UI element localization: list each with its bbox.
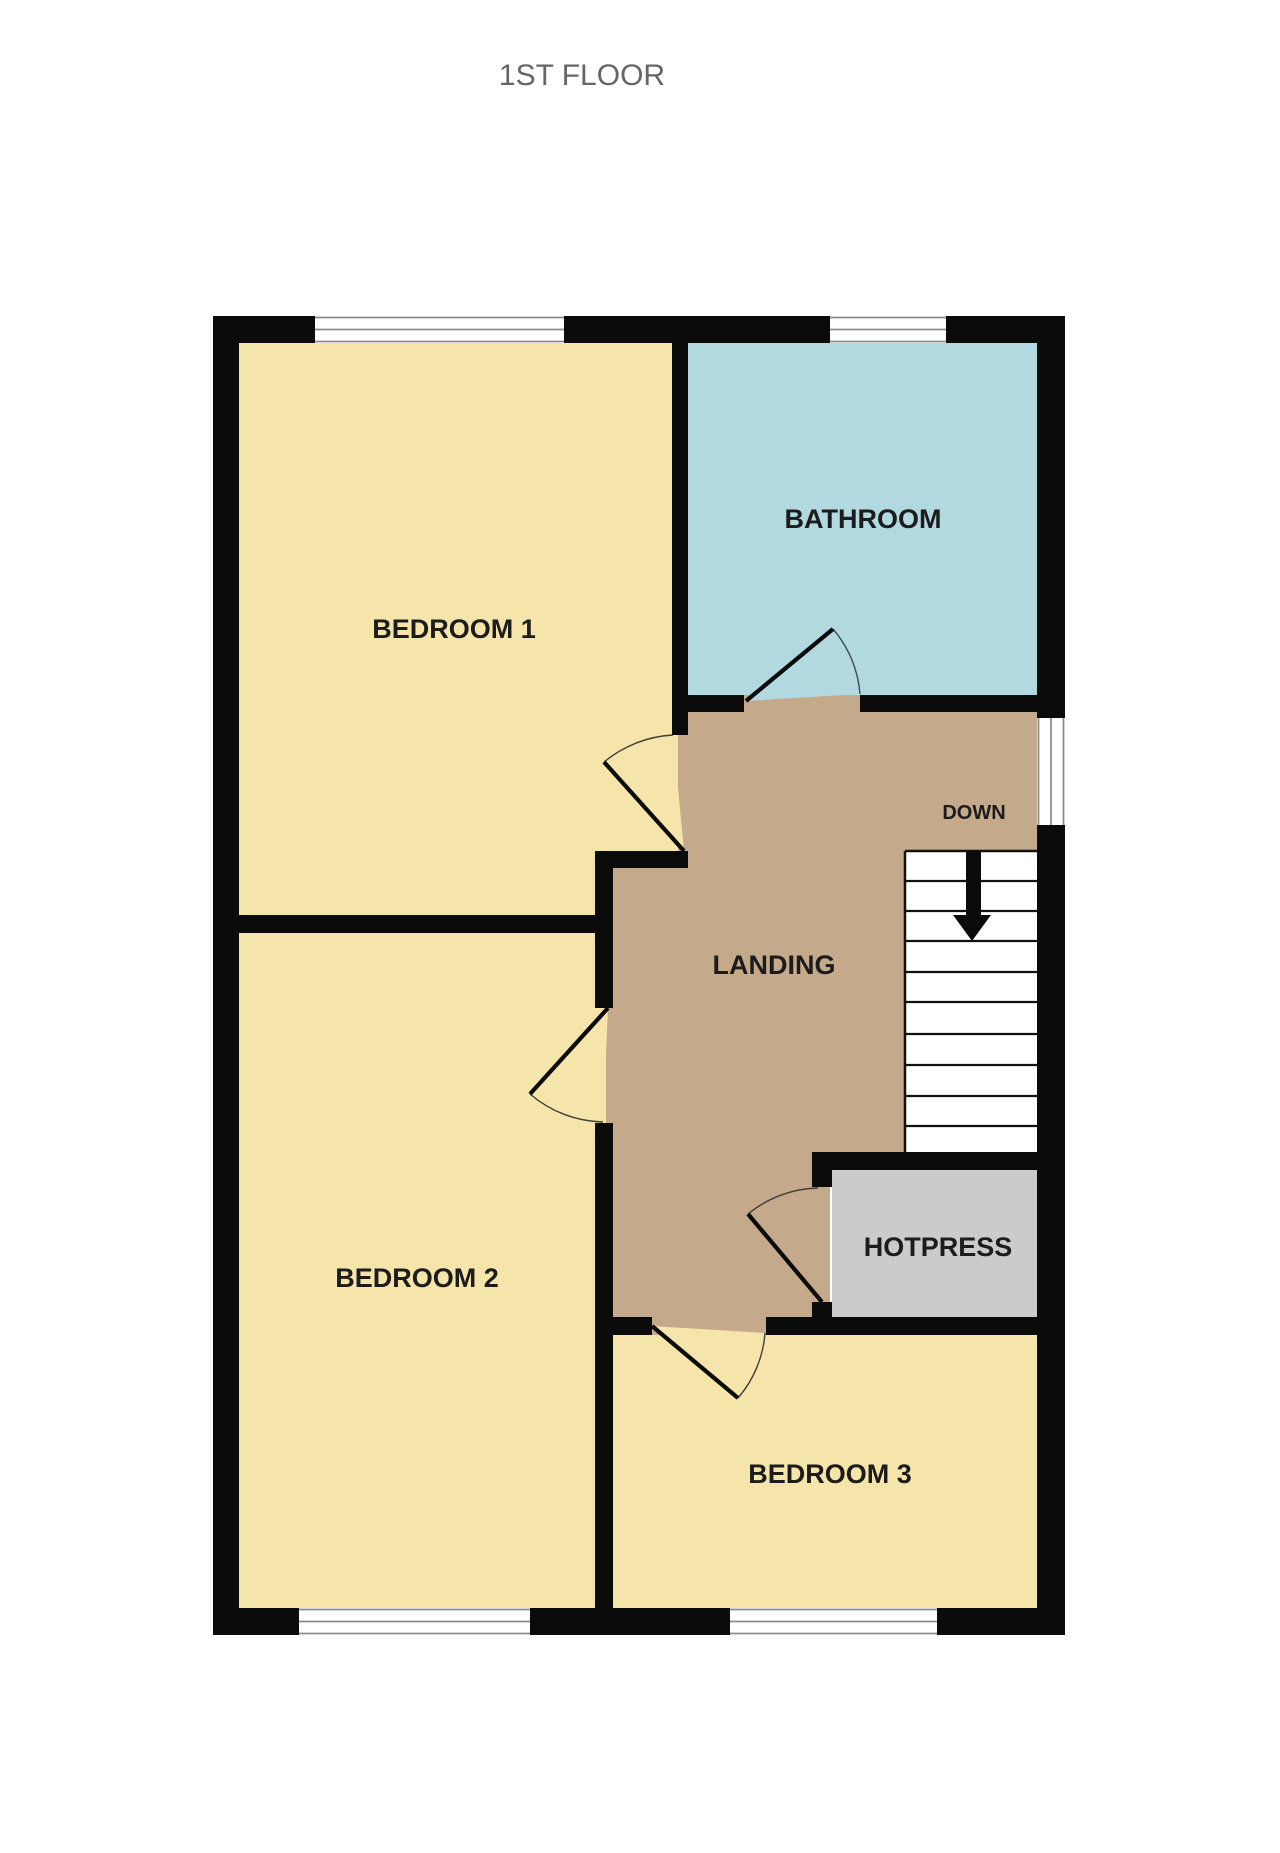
svg-text:1ST FLOOR: 1ST FLOOR bbox=[499, 59, 665, 92]
svg-text:HOTPRESS: HOTPRESS bbox=[864, 1232, 1013, 1262]
svg-text:LANDING: LANDING bbox=[713, 950, 836, 980]
svg-text:BEDROOM 2: BEDROOM 2 bbox=[335, 1263, 499, 1293]
svg-text:BEDROOM 3: BEDROOM 3 bbox=[748, 1459, 912, 1489]
svg-text:BATHROOM: BATHROOM bbox=[785, 504, 942, 534]
svg-text:DOWN: DOWN bbox=[942, 802, 1005, 824]
svg-text:BEDROOM 1: BEDROOM 1 bbox=[372, 614, 536, 644]
